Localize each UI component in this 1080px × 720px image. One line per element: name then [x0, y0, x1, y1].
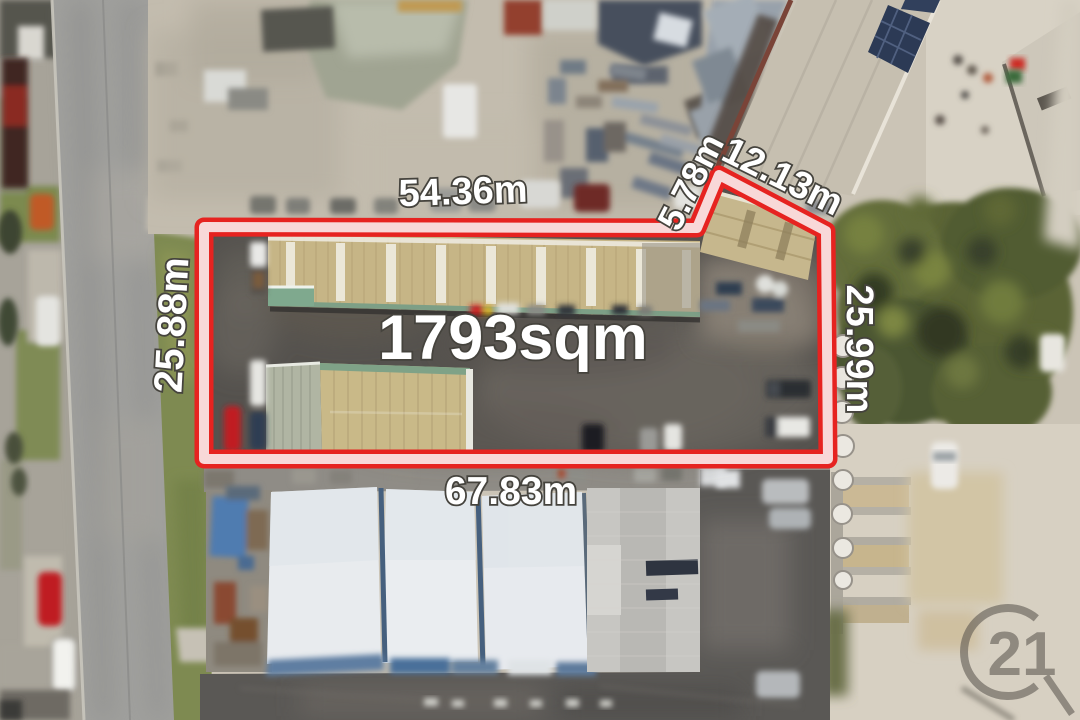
svg-text:25.88m: 25.88m: [146, 256, 197, 394]
svg-text:25.99m: 25.99m: [838, 285, 880, 414]
svg-text:67.83m: 67.83m: [445, 470, 577, 513]
svg-text:1793sqm: 1793sqm: [378, 303, 648, 373]
svg-text:54.36m: 54.36m: [398, 169, 528, 215]
